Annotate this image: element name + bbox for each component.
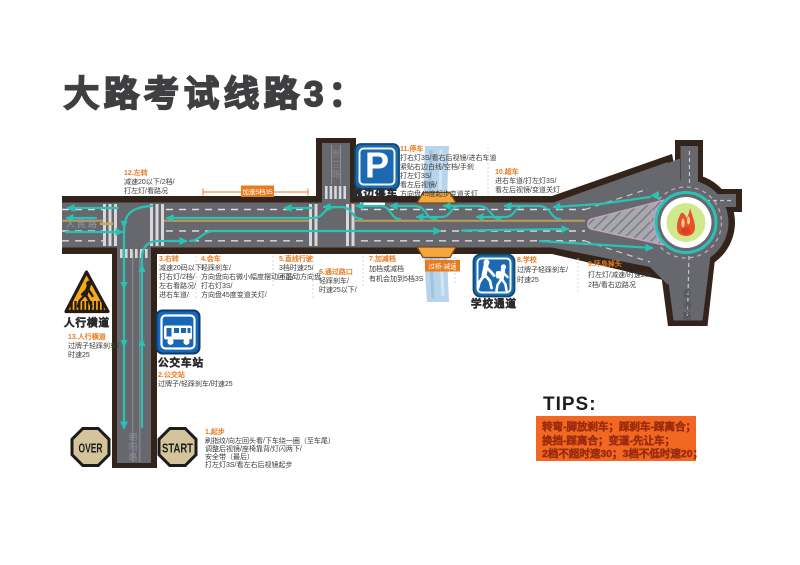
svg-text:朝: 朝 bbox=[129, 432, 138, 442]
svg-text:6.通过路口: 6.通过路口 bbox=[319, 267, 353, 276]
svg-text:看左后视镜/: 看左后视镜/ bbox=[400, 180, 437, 189]
svg-text:不能动方向盘: 不能动方向盘 bbox=[279, 272, 321, 281]
svg-text:9.环岛掉头: 9.环岛掉头 bbox=[588, 259, 622, 268]
svg-text:紧贴右边白线/空档/手刹: 紧贴右边白线/空档/手刹 bbox=[400, 162, 474, 171]
svg-text:打左灯/看路况: 打左灯/看路况 bbox=[124, 186, 168, 195]
svg-text:4.会车: 4.会车 bbox=[201, 254, 221, 263]
svg-text:过牌子轻踩刹车/: 过牌子轻踩刹车/ bbox=[517, 265, 568, 274]
svg-text:过桥-减速: 过桥-减速 bbox=[428, 262, 457, 271]
svg-text:P: P bbox=[365, 145, 389, 186]
svg-text:路: 路 bbox=[129, 452, 138, 462]
svg-text:减速20以下/2档/: 减速20以下/2档/ bbox=[124, 177, 175, 186]
svg-text:刷指纹/向左回头看/下车绕一圈（至车尾）: 刷指纹/向左回头看/下车绕一圈（至车尾） bbox=[205, 436, 335, 445]
svg-text:大路考试线路3：: 大路考试线路3： bbox=[64, 75, 368, 114]
svg-text:公交车站: 公交车站 bbox=[158, 356, 204, 369]
svg-text:兰: 兰 bbox=[332, 159, 341, 169]
svg-text:人行横道: 人行横道 bbox=[64, 316, 110, 329]
svg-text:12.左转: 12.左转 bbox=[124, 168, 148, 177]
svg-text:路: 路 bbox=[332, 169, 341, 179]
svg-text:OVER: OVER bbox=[79, 441, 103, 456]
svg-text:2档不超时速30；3档不低时速20；: 2档不超时速30；3档不低时速20； bbox=[542, 447, 703, 460]
svg-text:方向盘45度变道关灯/: 方向盘45度变道关灯/ bbox=[201, 290, 267, 299]
svg-text:时速25: 时速25 bbox=[517, 275, 539, 284]
svg-text:2档/看右边路况: 2档/看右边路况 bbox=[588, 280, 636, 289]
svg-text:打右灯3S/: 打右灯3S/ bbox=[201, 281, 233, 290]
svg-text:7.加减档: 7.加减档 bbox=[369, 254, 396, 263]
svg-text:贺: 贺 bbox=[332, 149, 341, 159]
svg-text:阳: 阳 bbox=[129, 442, 138, 452]
svg-text:加档或减档: 加档或减档 bbox=[369, 264, 404, 273]
svg-text:打左灯3S/看左右后视镜起步: 打左灯3S/看左右后视镜起步 bbox=[205, 460, 293, 469]
svg-text:有机会加到5档3S: 有机会加到5档3S bbox=[369, 274, 424, 283]
svg-text:方向盘45度起步变道关灯: 方向盘45度起步变道关灯 bbox=[400, 189, 478, 198]
svg-text:过牌子/轻踩刹车/时速25: 过牌子/轻踩刹车/时速25 bbox=[158, 379, 233, 388]
svg-text:换挡-踩离合；变道-先让车；: 换挡-踩离合；变道-先让车； bbox=[542, 434, 675, 447]
svg-text:1.起步: 1.起步 bbox=[205, 427, 225, 436]
svg-text:转弯-脚放刹车；踩刹车-踩离合；: 转弯-脚放刹车；踩刹车-踩离合； bbox=[542, 420, 696, 433]
svg-text:8.学校: 8.学校 bbox=[517, 255, 538, 264]
svg-text:进右车道/打左灯3S/: 进右车道/打左灯3S/ bbox=[495, 176, 557, 185]
svg-text:青: 青 bbox=[683, 289, 692, 299]
svg-text:进右车道/: 进右车道/ bbox=[159, 290, 189, 299]
svg-text:5.直线行驶: 5.直线行驶 bbox=[279, 254, 314, 263]
svg-text:时速25以下/: 时速25以下/ bbox=[319, 285, 357, 294]
svg-text:轻踩刹车/: 轻踩刹车/ bbox=[319, 276, 349, 285]
svg-text:打右灯/2档/: 打右灯/2档/ bbox=[159, 272, 195, 281]
svg-text:调整后视镜/座椅靠背/灯闪两下/: 调整后视镜/座椅靠背/灯闪两下/ bbox=[205, 444, 302, 453]
svg-text:打左灯3S/: 打左灯3S/ bbox=[400, 171, 432, 180]
svg-text:安全带（最后）: 安全带（最后） bbox=[205, 452, 254, 461]
svg-text:13.人行横道: 13.人行横道 bbox=[68, 332, 106, 341]
svg-text:轻踩刹车/: 轻踩刹车/ bbox=[201, 263, 231, 272]
svg-text:减速20码以下/: 减速20码以下/ bbox=[159, 263, 204, 272]
svg-text:过牌子轻踩刹车/: 过牌子轻踩刹车/ bbox=[68, 341, 119, 350]
svg-text:START: START bbox=[162, 441, 193, 456]
svg-text:左右看路况/: 左右看路况/ bbox=[159, 281, 196, 290]
svg-text:2.公交站: 2.公交站 bbox=[158, 370, 185, 379]
svg-text:海: 海 bbox=[683, 300, 692, 310]
svg-text:看左后视镜/变道关灯: 看左后视镜/变道关灯 bbox=[495, 185, 560, 194]
svg-text:11.停车: 11.停车 bbox=[400, 144, 423, 153]
svg-text:10.超车: 10.超车 bbox=[495, 167, 519, 176]
svg-text:3.右转: 3.右转 bbox=[159, 254, 179, 263]
svg-text:3档时速25/: 3档时速25/ bbox=[279, 263, 314, 272]
svg-text:人民路: 人民路 bbox=[66, 218, 99, 229]
svg-text:学校通道: 学校通道 bbox=[471, 297, 517, 310]
svg-text:路: 路 bbox=[683, 311, 692, 321]
svg-text:靠边停车: 靠边停车 bbox=[352, 187, 398, 200]
svg-text:时速25: 时速25 bbox=[68, 350, 90, 359]
svg-text:加速5档35: 加速5档35 bbox=[242, 187, 273, 196]
svg-text:打左灯/减速/时速20/: 打左灯/减速/时速20/ bbox=[588, 270, 651, 279]
svg-text:打右灯3S/看右后视镜/进右车道: 打右灯3S/看右后视镜/进右车道 bbox=[400, 153, 496, 162]
svg-text:TIPS:: TIPS: bbox=[543, 394, 597, 415]
